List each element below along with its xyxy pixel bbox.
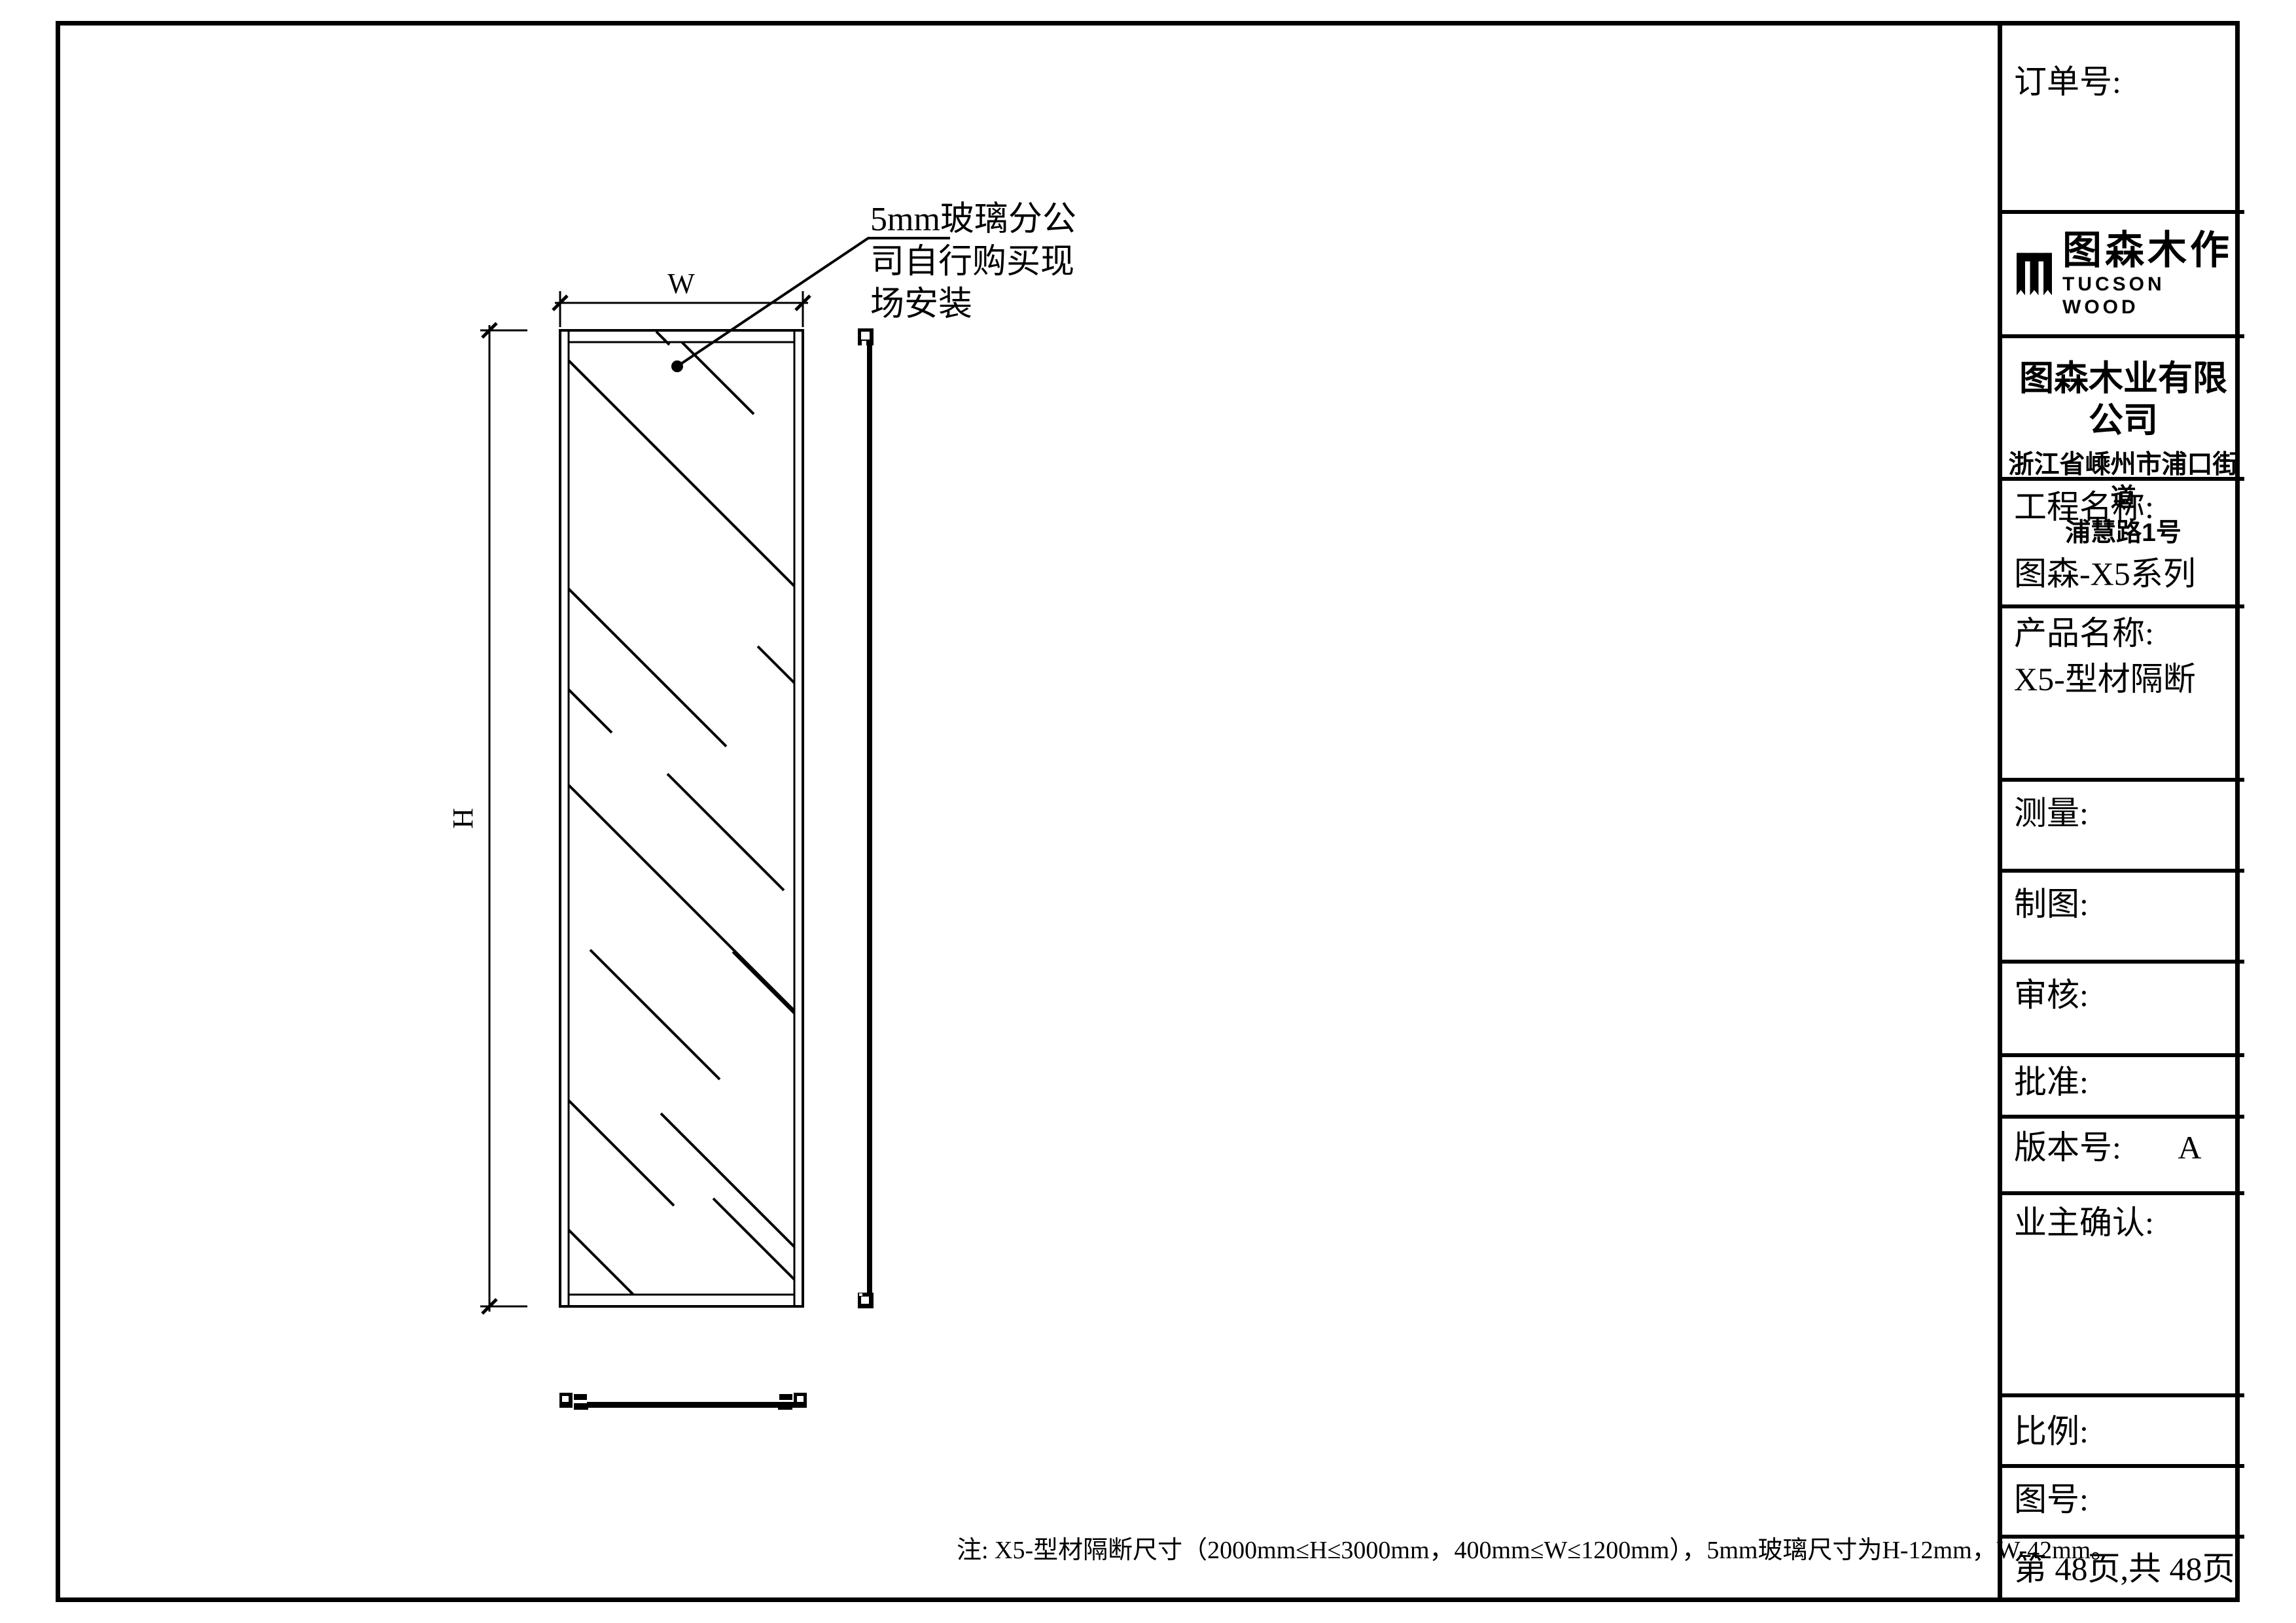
company-name: 图森木业有限公司 (2006, 358, 2240, 441)
measure-cell: 测量: (2002, 778, 2244, 869)
project-name-cell: 工程名称: 图森-X5系列 (2002, 477, 2244, 604)
product-name-label: 产品名称: (2014, 615, 2154, 653)
annotation-line3: 场安装 (870, 286, 972, 323)
version-cell: 版本号: A (2002, 1115, 2244, 1191)
panel-front-view (560, 330, 803, 1306)
cad-drawing-sheet: { "page": { "background": "#ffffff", "li… (0, 0, 2296, 1623)
project-name-value: 图森-X5系列 (2014, 555, 2235, 593)
measure-label: 测量: (2014, 795, 2089, 833)
owner-confirm-cell: 业主确认: (2002, 1191, 2244, 1393)
scale-label: 比例: (2014, 1413, 2089, 1451)
review-cell: 审核: (2002, 960, 2244, 1053)
dim-w-label: W (667, 268, 695, 300)
product-name-cell: 产品名称: X5-型材隔断 (2002, 604, 2244, 778)
owner-confirm-label: 业主确认: (2014, 1204, 2154, 1242)
dimension-h (480, 323, 527, 1314)
drawing-number-label: 图号: (2014, 1481, 2089, 1519)
order-number-cell: 订单号: (2002, 26, 2244, 210)
logo-cn-text: 图森木作 (2062, 230, 2233, 271)
version-label: 版本号: (2014, 1129, 2121, 1167)
order-number-label: 订单号: (2014, 63, 2121, 101)
company-cell: 图森木业有限公司 浙江省嵊州市浦口街道 浦慧路1号 (2002, 334, 2244, 477)
panel-plan-view (559, 1393, 807, 1410)
logo-en-text: TUCSON WOOD (2062, 273, 2239, 319)
drawing-canvas: W H 5mm玻璃分公 司自行购买现 场安装 注: X5-型材 (0, 0, 2296, 1623)
note-text: 注: X5-型材隔断尺寸（2000mm≤H≤3000mm，400mm≤W≤120… (957, 1537, 2115, 1564)
approve-cell: 批准: (2002, 1053, 2244, 1115)
draft-label: 制图: (2014, 886, 2089, 924)
review-label: 审核: (2014, 977, 2089, 1015)
drawing-number-cell: 图号: (2002, 1464, 2244, 1535)
product-name-value: X5-型材隔断 (2014, 661, 2235, 699)
title-block: 订单号: 图森木作 TUCSON WOOD 图森木业有限公司 浙江省嵊州市浦口街… (1998, 26, 2244, 1599)
project-name-label: 工程名称: (2014, 489, 2154, 527)
dim-h-label: H (447, 808, 479, 829)
version-value: A (2178, 1129, 2201, 1167)
page-info-text: 第 48页,共 48页 (2014, 1550, 2235, 1588)
logo-text-group: 图森木作 TUCSON WOOD (2062, 230, 2239, 319)
scale-cell: 比例: (2002, 1393, 2244, 1464)
tucson-wood-logo-icon (2017, 245, 2052, 303)
page-info-cell: 第 48页,共 48页 (2002, 1535, 2244, 1599)
logo-cell: 图森木作 TUCSON WOOD (2002, 210, 2244, 334)
glass-hatch (569, 342, 794, 1295)
annotation-line1: 5mm玻璃分公 (870, 201, 1076, 238)
draft-cell: 制图: (2002, 869, 2244, 960)
annotation-line2: 司自行购买现 (870, 243, 1074, 281)
panel-side-view (858, 328, 874, 1308)
approve-label: 批准: (2014, 1064, 2089, 1102)
